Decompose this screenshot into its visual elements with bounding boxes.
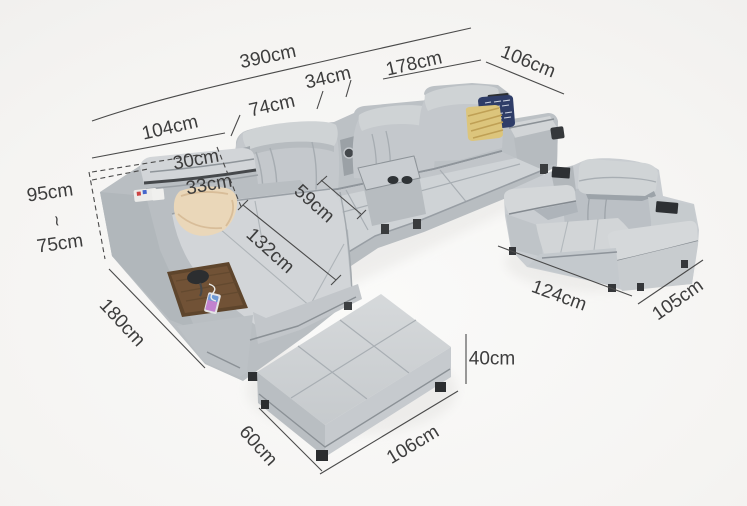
svg-text:40cm: 40cm	[469, 349, 515, 370]
